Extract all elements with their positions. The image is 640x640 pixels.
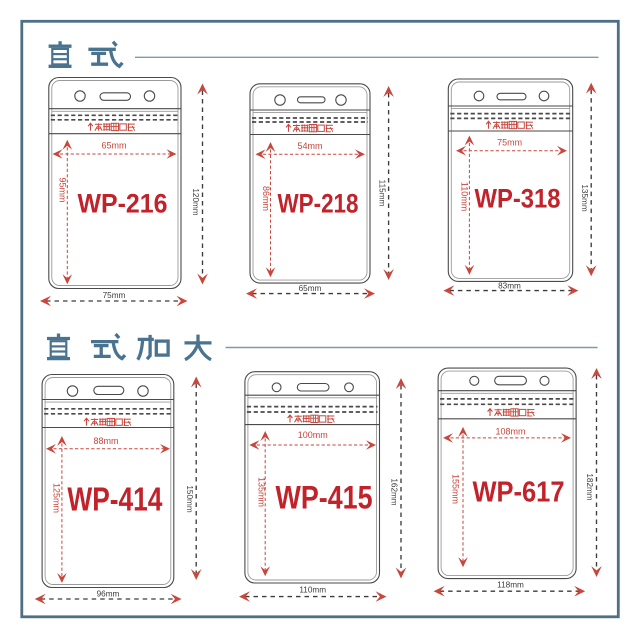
svg-text:65mm: 65mm — [101, 141, 126, 151]
svg-text:WP-617: WP-617 — [473, 477, 565, 509]
svg-text:WP-415: WP-415 — [276, 480, 373, 516]
svg-text:162mm: 162mm — [390, 478, 399, 505]
svg-text:WP-414: WP-414 — [67, 481, 163, 518]
svg-text:118mm: 118mm — [497, 580, 524, 589]
svg-text:120mm: 120mm — [191, 188, 200, 215]
svg-text:65mm: 65mm — [299, 284, 322, 293]
svg-text:110mm: 110mm — [299, 585, 326, 594]
svg-text:100mm: 100mm — [298, 430, 328, 440]
svg-text:155mm: 155mm — [451, 474, 461, 504]
svg-text:88mm: 88mm — [93, 436, 118, 446]
svg-text:75mm: 75mm — [497, 138, 522, 148]
svg-text:54mm: 54mm — [297, 141, 322, 151]
svg-text:135mm: 135mm — [257, 477, 267, 507]
svg-text:75mm: 75mm — [103, 291, 126, 300]
svg-text:WP-318: WP-318 — [475, 184, 561, 214]
svg-text:125mm: 125mm — [51, 483, 61, 513]
svg-text:108mm: 108mm — [495, 426, 525, 436]
svg-text:96mm: 96mm — [97, 590, 120, 599]
svg-text:95mm: 95mm — [58, 177, 68, 202]
svg-text:83mm: 83mm — [498, 281, 521, 290]
svg-text:WP-218: WP-218 — [278, 189, 359, 219]
svg-text:WP-216: WP-216 — [78, 189, 168, 219]
svg-text:110mm: 110mm — [460, 182, 470, 211]
svg-text:135mm: 135mm — [580, 184, 589, 211]
svg-text:86mm: 86mm — [261, 186, 271, 211]
svg-text:150mm: 150mm — [185, 485, 194, 512]
svg-text:182mm: 182mm — [585, 473, 594, 500]
svg-text:115mm: 115mm — [377, 180, 386, 207]
